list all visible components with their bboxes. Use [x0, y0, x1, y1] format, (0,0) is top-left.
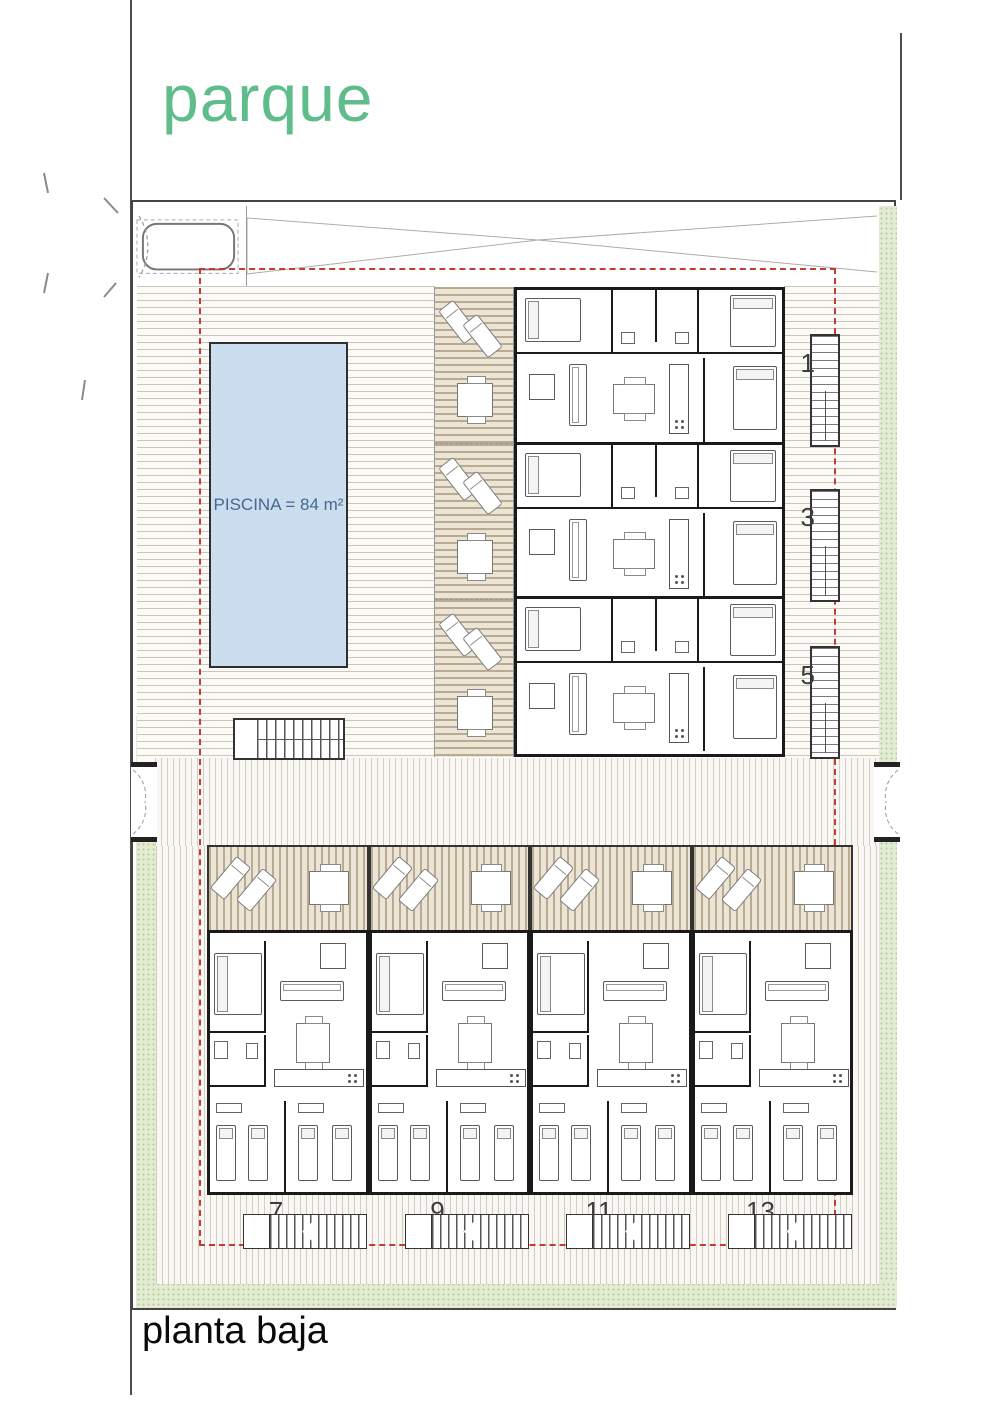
wardrobe — [460, 1103, 486, 1113]
bedroom — [695, 941, 751, 1033]
terrace — [369, 845, 531, 930]
wardrobe — [216, 1103, 242, 1113]
shower — [537, 1041, 551, 1059]
bathroom — [695, 1035, 751, 1087]
wardrobe — [621, 1103, 647, 1113]
unit-number: 5 — [781, 660, 815, 691]
bedroom — [703, 513, 782, 597]
apartment-interior — [692, 930, 854, 1195]
bathroom — [210, 1035, 266, 1087]
wardrobe — [701, 1103, 727, 1113]
kitchen-counter — [669, 364, 689, 434]
bedroom — [775, 1101, 851, 1192]
sofa — [603, 981, 667, 1001]
green-strip-right — [879, 206, 897, 1306]
walkway-stair — [233, 718, 345, 760]
toilet — [246, 1043, 258, 1059]
green-strip-left — [136, 762, 156, 1306]
lower-apartment-block: 7 — [207, 845, 853, 1195]
dining-table — [619, 1023, 653, 1063]
bedroom — [703, 358, 782, 442]
bedroom — [699, 599, 782, 663]
apartment-interior — [530, 930, 692, 1195]
swimming-pool: PISCINA = 84 m² — [209, 342, 348, 668]
living-room — [430, 933, 528, 1093]
bed — [376, 953, 424, 1015]
site-plan: PISCINA = 84 m² — [131, 200, 896, 1310]
bed — [332, 1125, 352, 1181]
floor-plan-canvas: parque — [0, 0, 1007, 1425]
upper-terraces — [434, 287, 514, 757]
wardrobe — [298, 1103, 324, 1113]
bed — [494, 1125, 514, 1181]
stair-landing — [406, 1215, 432, 1248]
terrace-table — [794, 871, 834, 905]
terrace — [530, 845, 692, 930]
bed — [733, 1125, 753, 1181]
bedroom — [699, 290, 782, 354]
sink — [675, 332, 689, 344]
bed — [699, 953, 747, 1015]
exterior-stair — [566, 1214, 690, 1249]
stair-treads — [257, 720, 343, 758]
bed — [733, 521, 777, 585]
sofa — [280, 981, 344, 1001]
bed — [214, 953, 262, 1015]
bedroom — [517, 599, 613, 663]
bedroom — [372, 941, 428, 1033]
terrace-table — [457, 696, 493, 730]
shower — [699, 1041, 713, 1059]
stair-landing — [244, 1215, 270, 1248]
armchair — [643, 943, 669, 969]
terrace — [692, 845, 854, 930]
stair-treads — [593, 1215, 689, 1248]
park-label: parque — [162, 60, 374, 136]
terrace — [207, 845, 369, 930]
bed — [730, 450, 776, 502]
bed — [733, 366, 777, 430]
sink — [675, 641, 689, 653]
upper-apartment-unit — [517, 599, 782, 751]
kitchen-counter — [669, 673, 689, 743]
wardrobe — [378, 1103, 404, 1113]
bedroom — [699, 445, 782, 509]
kitchen-counter — [436, 1069, 526, 1087]
terrace-table — [632, 871, 672, 905]
shower — [376, 1041, 390, 1059]
armchair — [529, 529, 555, 555]
terrace-table — [471, 871, 511, 905]
dining-table — [613, 693, 655, 723]
bed — [621, 1125, 641, 1181]
kitchen-counter — [759, 1069, 849, 1087]
bedroom — [613, 1101, 689, 1192]
stair-treads — [755, 1215, 851, 1248]
gate-swing-arcs — [874, 764, 900, 840]
unit-number: 3 — [781, 502, 815, 533]
stair-treads — [270, 1215, 366, 1248]
sofa — [569, 364, 587, 426]
unit-number: 1 — [781, 348, 815, 379]
wardrobe — [783, 1103, 809, 1113]
bedroom — [290, 1101, 366, 1192]
toilet — [569, 1043, 581, 1059]
bed — [525, 607, 581, 651]
bed — [537, 953, 585, 1015]
bed — [539, 1125, 559, 1181]
armchair — [482, 943, 508, 969]
apartment-interior — [207, 930, 369, 1195]
sofa — [569, 673, 587, 735]
exterior-stair — [405, 1214, 529, 1249]
terrace-table — [457, 383, 493, 417]
bedroom — [210, 1101, 286, 1192]
bathrooms — [613, 599, 699, 663]
bed — [410, 1125, 430, 1181]
bedroom — [452, 1101, 528, 1192]
bed — [248, 1125, 268, 1181]
living-room — [268, 933, 366, 1093]
floor-title: planta baja — [142, 1310, 328, 1353]
apartment-interior — [369, 930, 531, 1195]
kitchen-counter — [669, 519, 689, 589]
toilet — [731, 1043, 743, 1059]
pedestrian-gate-left — [131, 764, 157, 840]
terrace — [435, 287, 513, 444]
bathroom — [533, 1035, 589, 1087]
bedroom — [372, 1101, 448, 1192]
bed — [298, 1125, 318, 1181]
bed — [216, 1125, 236, 1181]
lower-apartment-unit: 7 — [207, 845, 369, 1195]
bedroom — [517, 290, 613, 354]
shower — [214, 1041, 228, 1059]
living-room — [753, 933, 851, 1093]
armchair — [529, 374, 555, 400]
sink — [621, 641, 635, 653]
dining-table — [613, 539, 655, 569]
bed — [730, 604, 776, 656]
bed — [460, 1125, 480, 1181]
stair-landing — [729, 1215, 755, 1248]
sink — [621, 332, 635, 344]
armchair — [805, 943, 831, 969]
pedestrian-gate-right — [874, 764, 900, 840]
green-strip-bottom — [136, 1282, 897, 1308]
bed — [733, 675, 777, 739]
armchair — [529, 683, 555, 709]
exterior-stair — [243, 1214, 367, 1249]
bed — [571, 1125, 591, 1181]
stair-landing — [567, 1215, 593, 1248]
upper-apartment-block — [514, 287, 785, 757]
dining-table — [296, 1023, 330, 1063]
kitchen-counter — [597, 1069, 687, 1087]
bedroom — [695, 1101, 771, 1192]
bed — [525, 453, 581, 497]
bed — [701, 1125, 721, 1181]
sofa — [765, 981, 829, 1001]
armchair — [320, 943, 346, 969]
gate-swing-arcs — [131, 764, 157, 840]
sofa — [569, 519, 587, 581]
terrace — [435, 444, 513, 601]
bed — [525, 298, 581, 342]
bedroom — [533, 941, 589, 1033]
sofa — [442, 981, 506, 1001]
stair-treads — [432, 1215, 528, 1248]
pool-label: PISCINA = 84 m² — [214, 495, 344, 515]
sink — [621, 487, 635, 499]
bed — [378, 1125, 398, 1181]
bathrooms — [613, 290, 699, 354]
lower-apartment-unit: 9 — [369, 845, 531, 1195]
lower-apartment-unit: 11 — [530, 845, 692, 1195]
bedroom — [533, 1101, 609, 1192]
exterior-stair — [728, 1214, 852, 1249]
bathroom — [372, 1035, 428, 1087]
sink — [675, 487, 689, 499]
terrace-table — [457, 540, 493, 574]
terrace — [435, 600, 513, 757]
bed — [783, 1125, 803, 1181]
bedroom — [517, 445, 613, 509]
bedroom — [703, 667, 782, 751]
page-right-border-line — [900, 33, 902, 200]
dining-table — [458, 1023, 492, 1063]
kitchen-counter — [274, 1069, 364, 1087]
dining-table — [613, 384, 655, 414]
living-room — [591, 933, 689, 1093]
toilet — [408, 1043, 420, 1059]
bedroom — [210, 941, 266, 1033]
upper-apartment-unit — [517, 290, 782, 445]
bed — [730, 295, 776, 347]
upper-apartment-unit — [517, 445, 782, 600]
bathrooms — [613, 445, 699, 509]
bed — [655, 1125, 675, 1181]
lower-apartment-unit: 13 — [692, 845, 854, 1195]
terrace-table — [309, 871, 349, 905]
dining-table — [781, 1023, 815, 1063]
bed — [817, 1125, 837, 1181]
wardrobe — [539, 1103, 565, 1113]
